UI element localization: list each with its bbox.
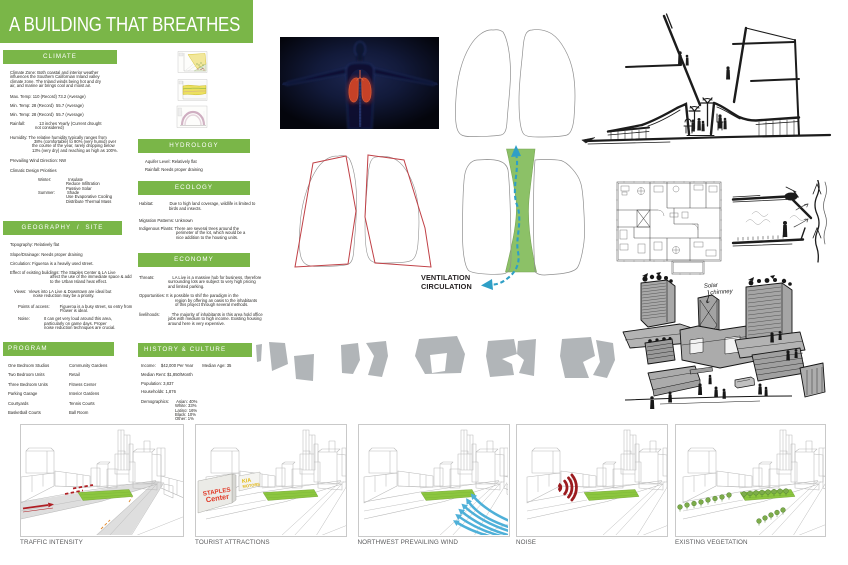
svg-text:Solar: Solar	[704, 283, 719, 290]
svg-text:chimney: chimney	[710, 289, 734, 297]
